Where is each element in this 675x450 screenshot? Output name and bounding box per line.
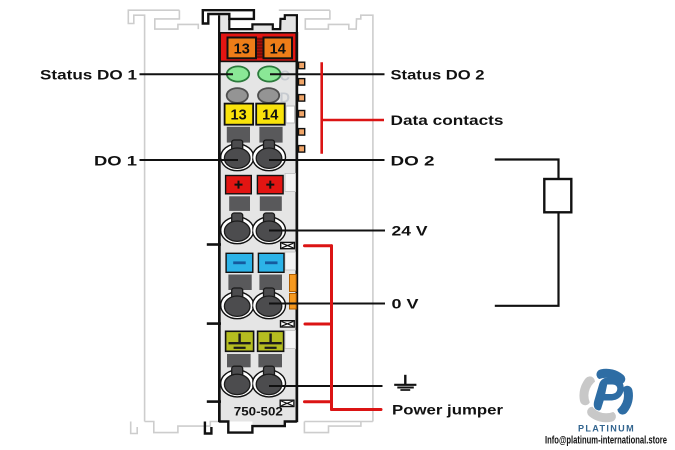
svg-text:Power jumper: Power jumper — [392, 401, 504, 417]
svg-text:Status DO 2: Status DO 2 — [391, 67, 485, 83]
svg-text:750-502: 750-502 — [234, 405, 283, 419]
svg-text:Info@platinum-international.st: Info@platinum-international.store — [545, 435, 667, 447]
svg-text:24 V: 24 V — [392, 223, 429, 239]
svg-text:13: 13 — [234, 42, 250, 58]
svg-text:C: C — [280, 69, 291, 85]
svg-text:Data contacts: Data contacts — [391, 112, 504, 128]
svg-text:14: 14 — [262, 108, 278, 124]
svg-text:14: 14 — [270, 42, 286, 58]
svg-text:DO 1: DO 1 — [94, 152, 137, 168]
svg-text:0 V: 0 V — [392, 296, 420, 312]
svg-text:DO 2: DO 2 — [391, 152, 435, 168]
svg-text:Status DO 1: Status DO 1 — [40, 67, 137, 83]
svg-text:PLATINUM: PLATINUM — [578, 424, 635, 435]
svg-text:13: 13 — [231, 108, 247, 124]
